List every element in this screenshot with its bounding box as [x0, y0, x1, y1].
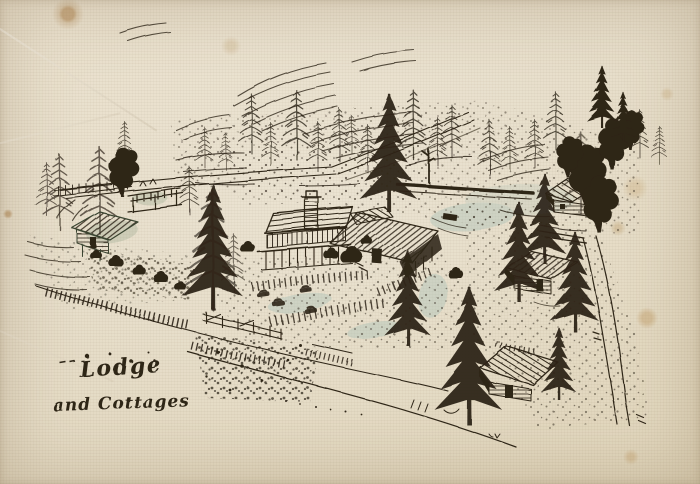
caption: Lodge and Cottages — [52, 351, 190, 416]
road-dots — [285, 400, 363, 416]
cottage-door — [536, 279, 543, 291]
bush — [323, 247, 338, 258]
bush — [240, 241, 255, 252]
cottage-door — [505, 385, 513, 398]
lodge-door — [372, 249, 383, 264]
caption-and-cottages: and Cottages — [52, 391, 190, 416]
caption-lodge: Lodge — [78, 351, 163, 383]
cottage-window — [560, 204, 565, 209]
pine-tree — [587, 65, 617, 128]
ink-fills: Lodge and Cottages — [30, 65, 650, 430]
scanned-sketch: Lodge and Cottages — [0, 0, 700, 484]
ink-drawing: Lodge and Cottages — [0, 0, 700, 484]
cottage-door — [90, 237, 96, 248]
pine-tree — [652, 126, 668, 165]
